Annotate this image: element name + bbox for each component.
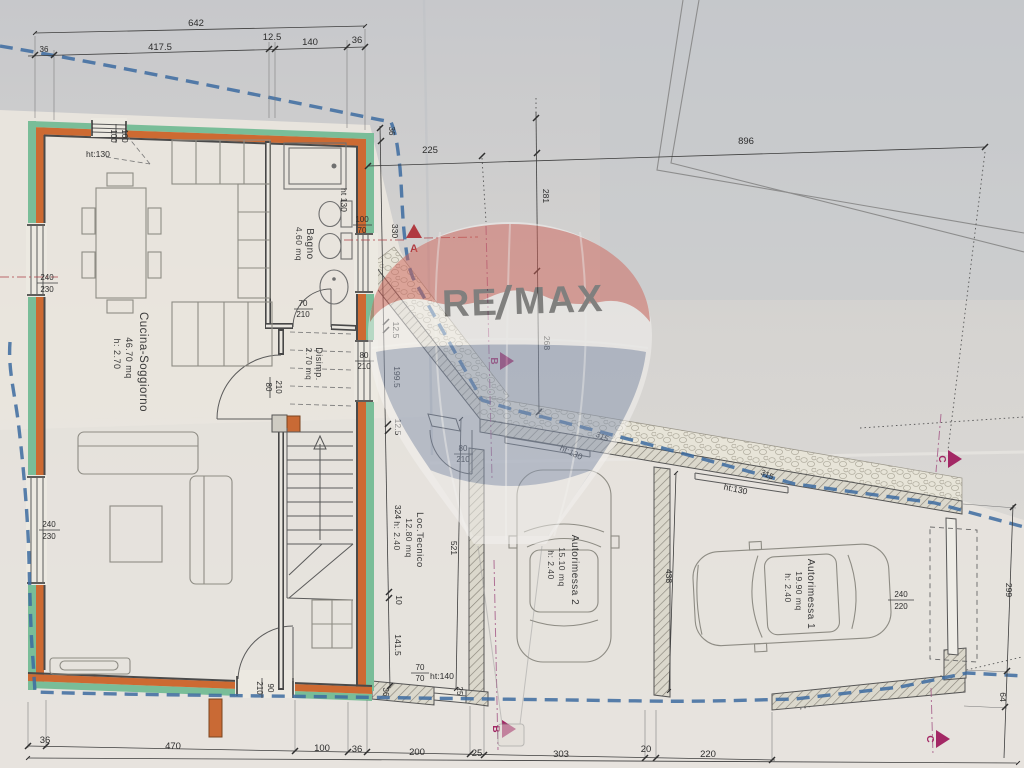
remax-max: MAX [513, 278, 605, 323]
room-disimp-name: Disimp. [314, 347, 324, 381]
section-c-label-right: C [936, 455, 947, 462]
dim-521: 521 [449, 541, 459, 556]
dim-299: 299 [1004, 583, 1014, 598]
room-loctec-height: h: 2.40 [392, 521, 402, 551]
win-left1-230: 230 [40, 285, 54, 294]
dim-b25: 25 [472, 748, 483, 759]
win-7070-b: 70 [416, 674, 425, 683]
dim-12-5-top: 12.5 [263, 32, 282, 43]
floor-plan-photo: A B B C C 642 36 417.5 12.5 140 36 896 2… [0, 0, 1024, 768]
win-7070-a: 70 [416, 663, 425, 672]
dim-b36b: 36 [352, 744, 363, 755]
dim-b470: 470 [165, 741, 181, 752]
dim-b303: 303 [553, 749, 569, 760]
door-pillar-orange [287, 416, 300, 432]
room-loctec-area: 12.80 mq [404, 518, 414, 557]
room-loctec-name: Loc.Tecnico [414, 512, 425, 568]
ht140-window: ht:140 [430, 671, 454, 681]
dim-b20: 20 [641, 744, 652, 755]
door-pillar-gray [272, 415, 287, 432]
win-left2-230: 230 [42, 532, 56, 541]
door-disimp-80: 80 [360, 351, 369, 360]
door-kitchen-80: 80 [264, 383, 273, 392]
room-auto2-height: h: 2.40 [546, 550, 556, 580]
dim-36-right: 36 [352, 35, 363, 46]
door-bagno-70: 70 [299, 299, 308, 308]
ht130-bagno: ht 130 [339, 188, 349, 212]
floor-plan-drawing: A B B C C 642 36 417.5 12.5 140 36 896 2… [0, 0, 1024, 768]
dim-b36a: 36 [40, 735, 51, 746]
dim-b200: 200 [409, 747, 425, 758]
dim-417-5: 417.5 [148, 42, 172, 53]
dim-36-bottom: 36 [381, 688, 390, 697]
dim-140: 140 [302, 37, 318, 48]
dim-25-rot: 25 [455, 687, 464, 696]
room-auto2-area: 15.10 mq [557, 547, 567, 586]
dim-281: 281 [541, 189, 551, 204]
room-bagno-name: Bagno [304, 228, 315, 259]
balloon-basket [498, 724, 524, 746]
room-bagno-area: 4.60 mq [294, 227, 304, 261]
dim-b220: 220 [700, 749, 716, 760]
win-bagno-70: 70 [358, 226, 367, 235]
door-disimp-210: 210 [357, 362, 371, 371]
room-cucina-name: Cucina-Soggiorno [137, 312, 149, 412]
win-left1-240: 240 [40, 273, 54, 282]
dim-10: 10 [394, 595, 404, 605]
section-c-label-bottom: C [924, 735, 935, 742]
dim-330: 330 [390, 224, 400, 239]
door-entry-90: 90 [266, 684, 275, 693]
window-100x70-bagno [354, 233, 378, 294]
ht130-topleft: ht:130 [86, 149, 110, 159]
win-100-a: 100 [109, 129, 118, 143]
dim-36-left: 36 [40, 45, 49, 54]
dim-36-topright: 36 [387, 127, 396, 136]
door-kitchen-210: 210 [274, 380, 283, 394]
garagedoor-220: 220 [894, 602, 908, 611]
dim-896: 896 [738, 136, 754, 147]
dim-64: 64 [998, 692, 1008, 702]
win-left2-240: 240 [42, 520, 56, 529]
dim-324: 324 [393, 505, 403, 520]
door-entry-210: 210 [255, 681, 264, 695]
win-100-b: 100 [120, 129, 129, 143]
win-bagno-100: 100 [355, 215, 369, 224]
remax-re: RE [441, 282, 499, 326]
garagedoor-240: 240 [894, 590, 908, 599]
dim-642: 642 [188, 18, 204, 29]
dim-438: 438 [664, 569, 674, 584]
garage1-door-panel [946, 518, 958, 655]
dim-141-5: 141.5 [393, 634, 403, 656]
dim-b100: 100 [314, 743, 330, 754]
dim-225: 225 [422, 145, 438, 156]
paper-cool-topright [600, 0, 1024, 300]
room-auto1-name: Autorimessa 1 [805, 559, 816, 629]
room-auto2-name: Autorimessa 2 [569, 535, 580, 605]
room-auto1-height: h: 2.40 [783, 573, 793, 603]
exterior-pillar [209, 699, 222, 737]
room-disimp-area: 2.70 mq [304, 348, 313, 380]
room-cucina-height: h: 2.70 [112, 338, 122, 369]
room-cucina-area: 46.70 mq [124, 337, 134, 379]
room-auto1-area: 19.90 mq [794, 571, 804, 610]
door-bagno-210: 210 [296, 310, 310, 319]
wall-left-orange [36, 128, 44, 688]
